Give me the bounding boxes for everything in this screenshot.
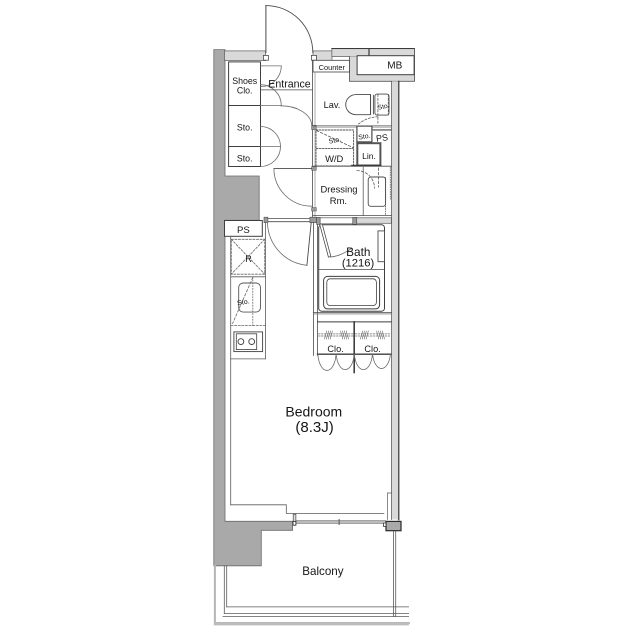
svg-text:W/D: W/D [325,153,343,164]
svg-text:Entrance: Entrance [268,78,311,90]
svg-text:Dressing: Dressing [321,184,358,195]
svg-text:R: R [245,254,251,264]
svg-text:MB: MB [387,61,402,72]
svg-text:Bedroom: Bedroom [285,404,342,420]
svg-text:Lav.: Lav. [324,100,341,110]
svg-text:Rm.: Rm. [330,195,347,206]
svg-text:PS: PS [375,132,388,144]
svg-text:(1216): (1216) [342,258,375,270]
svg-text:Counter: Counter [319,63,346,72]
svg-text:(8.3J): (8.3J) [295,419,333,436]
svg-text:Clo.: Clo. [364,344,380,354]
svg-text:Clo.: Clo. [237,85,253,95]
svg-text:Balcony: Balcony [302,565,343,578]
svg-text:Sto.: Sto. [237,122,253,132]
svg-text:Sto.: Sto. [237,153,253,163]
svg-text:Lin.: Lin. [362,151,376,161]
svg-text:PS: PS [237,225,250,236]
svg-text:Clo.: Clo. [327,344,343,354]
